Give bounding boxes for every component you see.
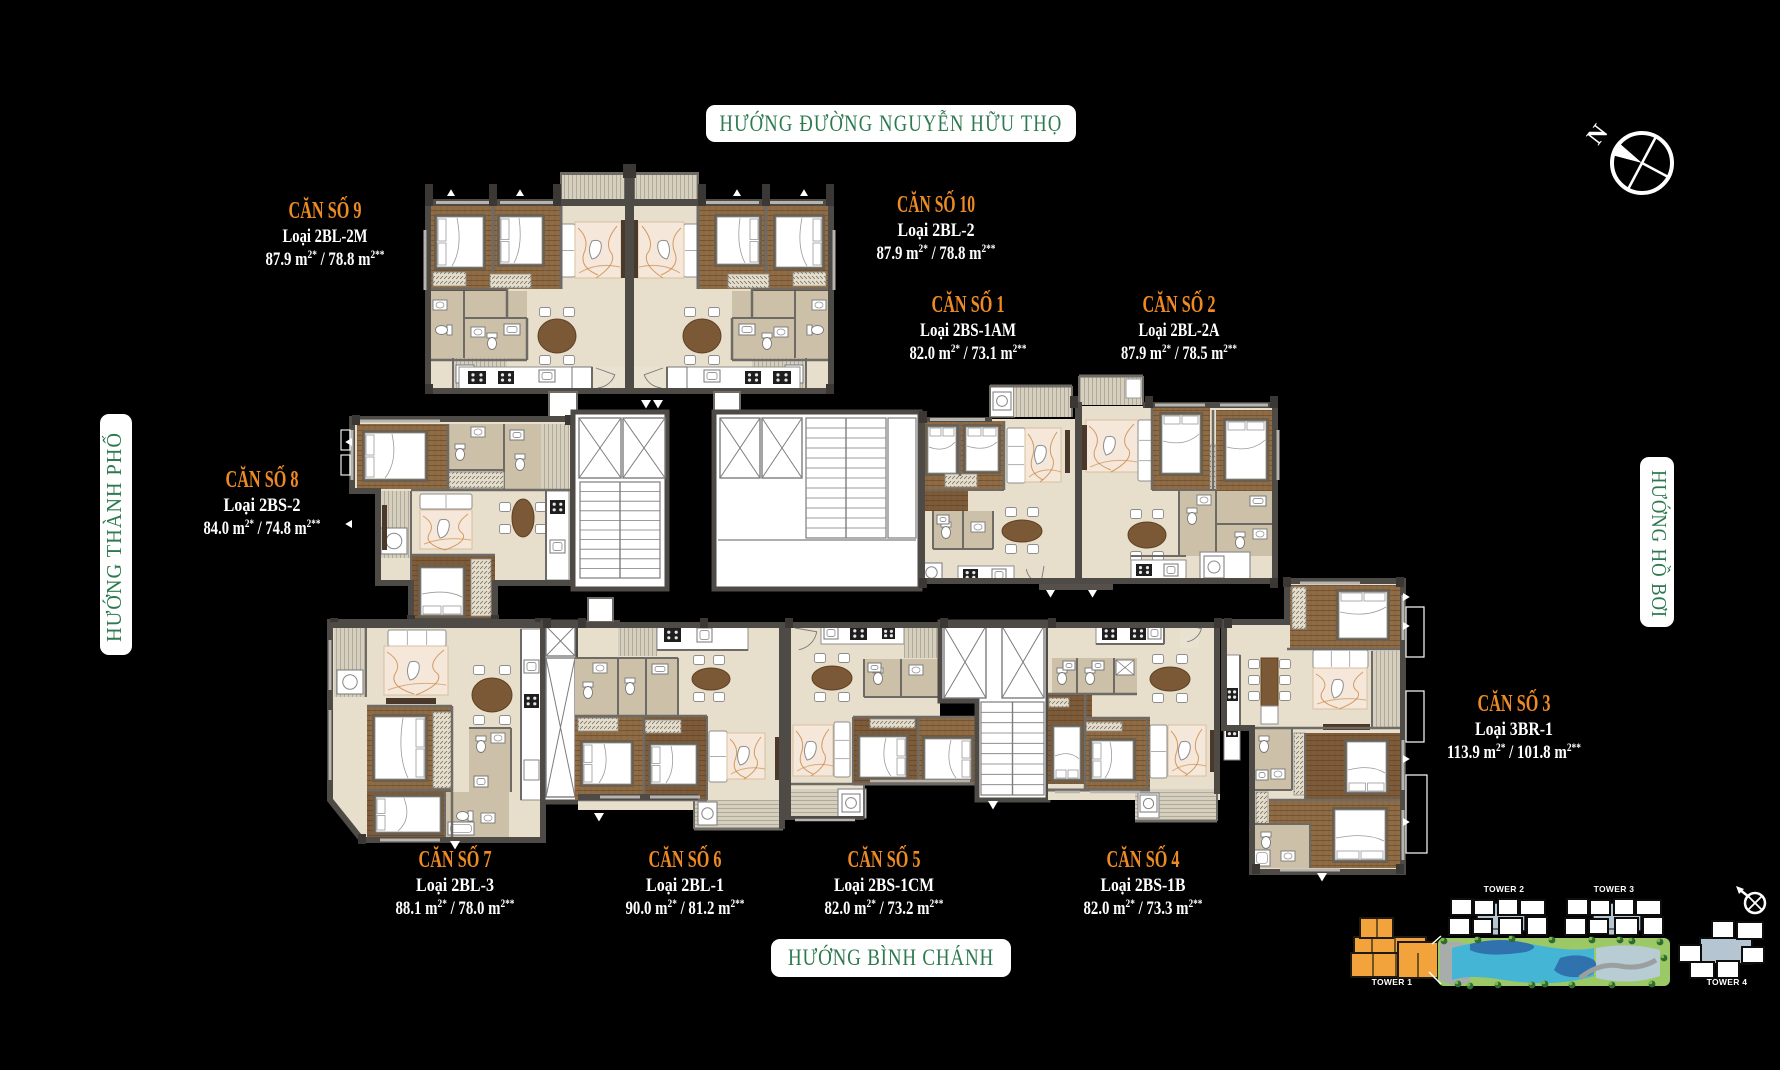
svg-text:TOWER 3: TOWER 3 — [1594, 884, 1635, 894]
svg-text:87.9 m2* / 78.8 m2**: 87.9 m2* / 78.8 m2** — [266, 247, 385, 270]
svg-text:82.0 m2* / 73.2 m2**: 82.0 m2* / 73.2 m2** — [825, 896, 944, 919]
svg-text:TOWER 2: TOWER 2 — [1484, 884, 1525, 894]
svg-text:HƯỚNG HỒ BƠI: HƯỚNG HỒ BƠI — [1647, 470, 1671, 618]
svg-text:CĂN SỐ 2: CĂN SỐ 2 — [1143, 291, 1216, 318]
svg-text:Loại 2BL-2: Loại 2BL-2 — [898, 220, 975, 241]
svg-text:CĂN SỐ 9: CĂN SỐ 9 — [289, 197, 362, 224]
svg-text:Loại 2BL-1: Loại 2BL-1 — [646, 875, 724, 896]
svg-text:CĂN SỐ 3: CĂN SỐ 3 — [1478, 690, 1551, 717]
svg-text:TOWER 1: TOWER 1 — [1372, 977, 1413, 987]
svg-text:Loại 3BR-1: Loại 3BR-1 — [1475, 719, 1553, 740]
svg-text:Loại 2BL-2A: Loại 2BL-2A — [1139, 320, 1220, 341]
svg-text:CĂN SỐ 8: CĂN SỐ 8 — [226, 466, 299, 493]
svg-text:CĂN SỐ 1: CĂN SỐ 1 — [932, 291, 1005, 318]
svg-text:84.0 m2* / 74.8 m2**: 84.0 m2* / 74.8 m2** — [204, 516, 321, 539]
svg-text:Loại 2BL-2M: Loại 2BL-2M — [283, 226, 368, 247]
svg-text:HƯỚNG BÌNH CHÁNH: HƯỚNG BÌNH CHÁNH — [788, 944, 994, 970]
svg-text:CĂN SỐ 5: CĂN SỐ 5 — [848, 846, 921, 873]
svg-text:CĂN SỐ 10: CĂN SỐ 10 — [897, 191, 975, 218]
svg-text:Loại 2BS-1CM: Loại 2BS-1CM — [834, 875, 934, 896]
svg-text:90.0 m2* / 81.2 m2**: 90.0 m2* / 81.2 m2** — [626, 896, 745, 919]
svg-text:113.9 m2* / 101.8 m2**: 113.9 m2* / 101.8 m2** — [1447, 740, 1581, 763]
svg-text:HƯỚNG THÀNH PHỐ: HƯỚNG THÀNH PHỐ — [102, 432, 126, 642]
svg-text:CĂN SỐ 6: CĂN SỐ 6 — [649, 846, 722, 873]
svg-text:82.0 m2* / 73.1 m2**: 82.0 m2* / 73.1 m2** — [910, 341, 1027, 364]
svg-text:HƯỚNG ĐƯỜNG NGUYỄN HỮU THỌ: HƯỚNG ĐƯỜNG NGUYỄN HỮU THỌ — [720, 110, 1063, 136]
svg-text:87.9 m2* / 78.8 m2**: 87.9 m2* / 78.8 m2** — [877, 241, 996, 264]
svg-text:87.9 m2* / 78.5 m2**: 87.9 m2* / 78.5 m2** — [1121, 341, 1237, 364]
svg-text:CĂN SỐ 4: CĂN SỐ 4 — [1107, 846, 1180, 873]
svg-text:82.0 m2* / 73.3 m2**: 82.0 m2* / 73.3 m2** — [1084, 896, 1203, 919]
svg-text:Loại 2BL-3: Loại 2BL-3 — [416, 875, 494, 896]
svg-text:CĂN SỐ 7: CĂN SỐ 7 — [419, 846, 492, 873]
svg-text:Loại 2BS-1AM: Loại 2BS-1AM — [920, 320, 1016, 341]
svg-text:Loại 2BS-2: Loại 2BS-2 — [224, 495, 301, 516]
svg-text:TOWER 4: TOWER 4 — [1707, 977, 1748, 987]
svg-text:88.1 m2* / 78.0 m2**: 88.1 m2* / 78.0 m2** — [396, 896, 515, 919]
svg-text:Loại 2BS-1B: Loại 2BS-1B — [1101, 875, 1186, 896]
